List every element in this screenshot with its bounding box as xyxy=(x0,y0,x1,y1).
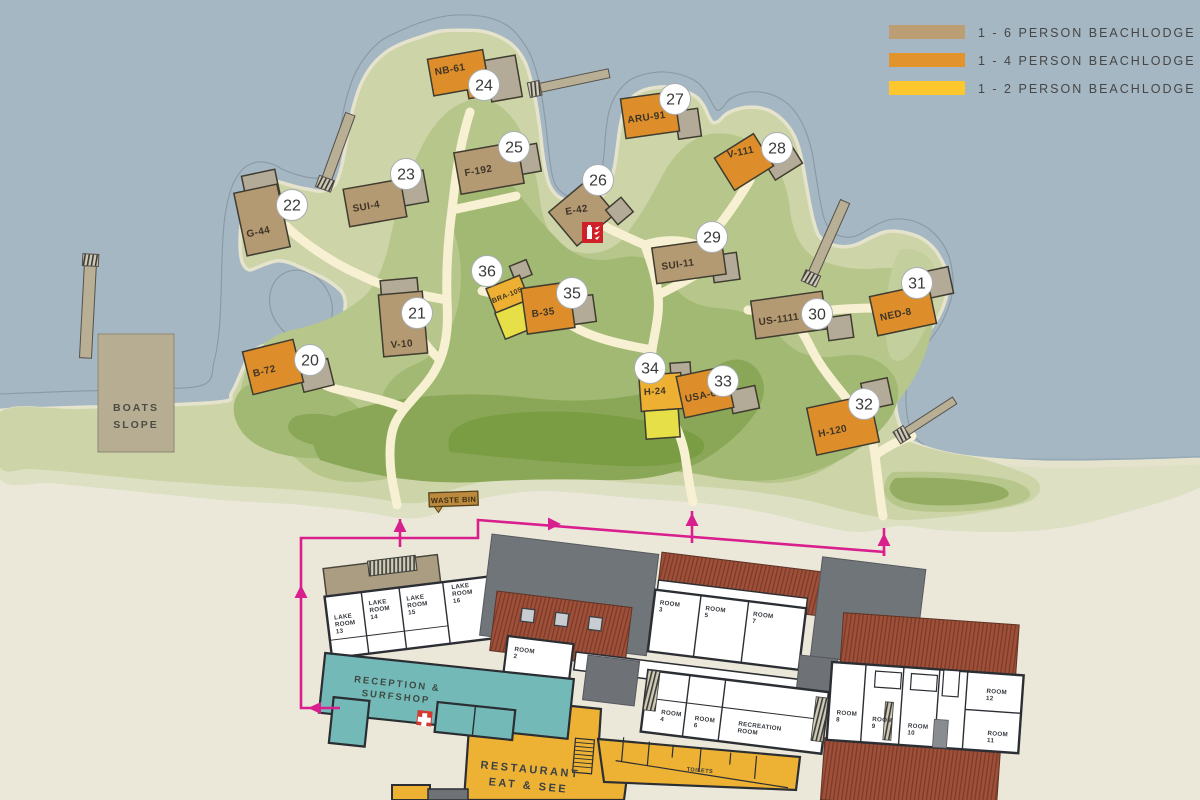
svg-text:25: 25 xyxy=(505,140,523,157)
svg-text:32: 32 xyxy=(855,397,873,414)
svg-text:31: 31 xyxy=(908,276,926,293)
svg-text:28: 28 xyxy=(768,141,786,158)
svg-text:13: 13 xyxy=(336,628,345,636)
svg-text:10: 10 xyxy=(907,729,915,737)
svg-text:36: 36 xyxy=(478,264,496,281)
svg-text:1 - 6 PERSON BEACHLODGE: 1 - 6 PERSON BEACHLODGE xyxy=(978,26,1196,40)
svg-text:H-24: H-24 xyxy=(644,386,667,399)
svg-text:11: 11 xyxy=(987,737,995,744)
svg-text:30: 30 xyxy=(808,307,826,324)
svg-text:14: 14 xyxy=(370,613,379,621)
svg-text:12: 12 xyxy=(986,695,994,703)
svg-text:WASTE BIN: WASTE BIN xyxy=(431,495,477,506)
svg-text:33: 33 xyxy=(714,374,732,391)
svg-text:V-10: V-10 xyxy=(390,338,413,351)
svg-text:8: 8 xyxy=(836,716,840,723)
svg-text:23: 23 xyxy=(397,167,415,184)
svg-text:34: 34 xyxy=(641,361,659,378)
svg-text:29: 29 xyxy=(703,230,721,247)
svg-text:22: 22 xyxy=(283,198,301,215)
svg-text:24: 24 xyxy=(475,78,493,95)
svg-text:21: 21 xyxy=(408,306,426,323)
svg-text:BOATS: BOATS xyxy=(113,402,159,414)
svg-text:9: 9 xyxy=(871,723,875,730)
svg-text:27: 27 xyxy=(666,92,684,109)
svg-text:20: 20 xyxy=(301,353,319,370)
svg-text:26: 26 xyxy=(589,173,607,190)
svg-text:SLOPE: SLOPE xyxy=(113,419,159,431)
svg-text:35: 35 xyxy=(563,286,581,303)
svg-text:15: 15 xyxy=(408,609,417,617)
svg-text:1 - 2 PERSON BEACHLODGE: 1 - 2 PERSON BEACHLODGE xyxy=(978,82,1196,96)
svg-text:16: 16 xyxy=(453,597,462,605)
svg-text:1 - 4 PERSON BEACHLODGE: 1 - 4 PERSON BEACHLODGE xyxy=(978,54,1196,68)
